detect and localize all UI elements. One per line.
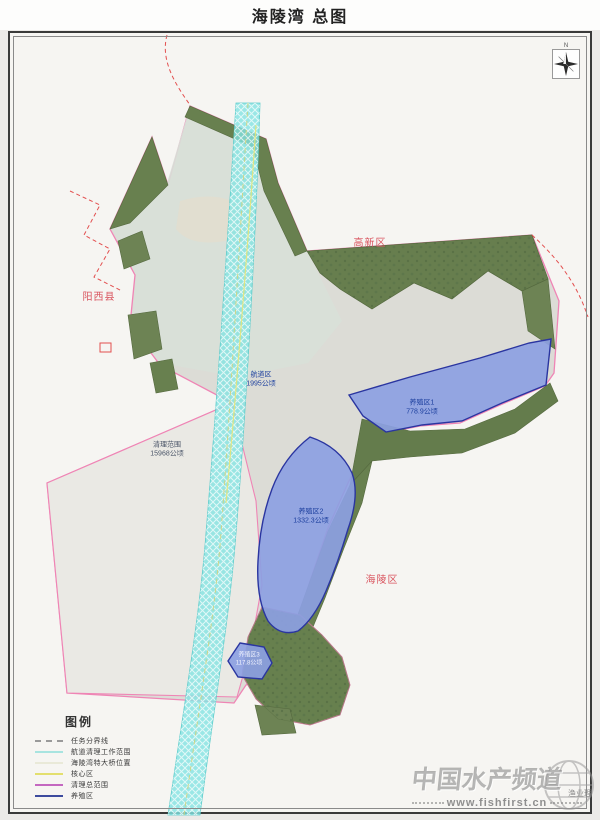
label-hailing-district: 海陵区 [366, 575, 399, 588]
legend-item-bridge-location: 海陵湾特大桥位置 [27, 758, 197, 768]
dash-line [412, 802, 444, 804]
legend-label: 航道清理工作范围 [71, 747, 131, 757]
zone1-name: 养殖区1 [406, 399, 438, 408]
zone3-name: 养殖区3 [236, 653, 263, 661]
page-title: 海陵湾 总图 [252, 3, 348, 27]
watermark-note: 渔业理 [568, 788, 592, 799]
cleanup-area-size: 15968公顷 [150, 450, 183, 459]
legend-label: 海陵湾特大桥位置 [71, 758, 131, 768]
label-zone2: 养殖区2 1332.3公顷 [293, 508, 328, 526]
legend-label: 养殖区 [71, 791, 94, 801]
legend: 图例 任务分界线 航道清理工作范围 海陵湾特大桥位置 核心区 清理总范围 养殖区 [27, 713, 197, 802]
compass-star-icon [554, 52, 578, 76]
compass-box [552, 49, 580, 79]
channel-area-size: 1995公顷 [246, 380, 276, 389]
zone2-size: 1332.3公顷 [293, 517, 328, 526]
watermark: 中国水产频道 www.fishfirst.cn 渔业理 [412, 760, 598, 818]
label-cleanup-area: 清理范围 15968公顷 [150, 441, 183, 459]
title-bar: 海陵湾 总图 [0, 0, 600, 30]
map-canvas [10, 33, 594, 817]
legend-swatch-pale-line [35, 762, 63, 764]
legend-label: 核心区 [71, 769, 94, 779]
label-zone3: 养殖区3 117.8公顷 [236, 653, 263, 668]
legend-swatch-cyan-line [35, 751, 63, 753]
legend-swatch-yellow-line [35, 773, 63, 775]
dash-line [550, 802, 582, 804]
legend-item-channel-scope: 航道清理工作范围 [27, 747, 197, 757]
label-channel-area: 航道区 1995公顷 [246, 371, 276, 389]
watermark-url: www.fishfirst.cn [444, 797, 551, 809]
label-zone1: 养殖区1 778.9公顷 [406, 399, 438, 417]
legend-swatch-magenta-line [35, 784, 63, 786]
cleanup-area-name: 清理范围 [150, 441, 183, 450]
page: { "page": { "title": "海陵湾 总图" }, "map": … [0, 0, 600, 820]
legend-swatch-dashed-line [35, 740, 63, 742]
label-yangxi-county: 阳西县 [83, 292, 116, 305]
legend-item-core-area: 核心区 [27, 769, 197, 779]
legend-title: 图例 [65, 713, 197, 730]
compass-rose: N [551, 43, 581, 79]
channel-area-name: 航道区 [246, 371, 276, 380]
zone3-size: 117.8公顷 [236, 660, 263, 668]
legend-label: 任务分界线 [71, 736, 109, 746]
legend-swatch-navy-line [35, 795, 63, 797]
zone1-size: 778.9公顷 [406, 408, 438, 417]
map-sheet: 高新区 阳西县 海陵区 航道区 1995公顷 清理范围 15968公顷 养殖区1… [8, 31, 592, 814]
legend-item-cleanup-scope: 清理总范围 [27, 780, 197, 790]
legend-item-aquaculture: 养殖区 [27, 791, 197, 801]
legend-item-task-boundary: 任务分界线 [27, 736, 197, 746]
legend-label: 清理总范围 [71, 780, 109, 790]
label-gaoxin-district: 高新区 [354, 238, 387, 251]
zone2-name: 养殖区2 [293, 508, 328, 517]
watermark-url-row: www.fishfirst.cn [412, 797, 582, 809]
